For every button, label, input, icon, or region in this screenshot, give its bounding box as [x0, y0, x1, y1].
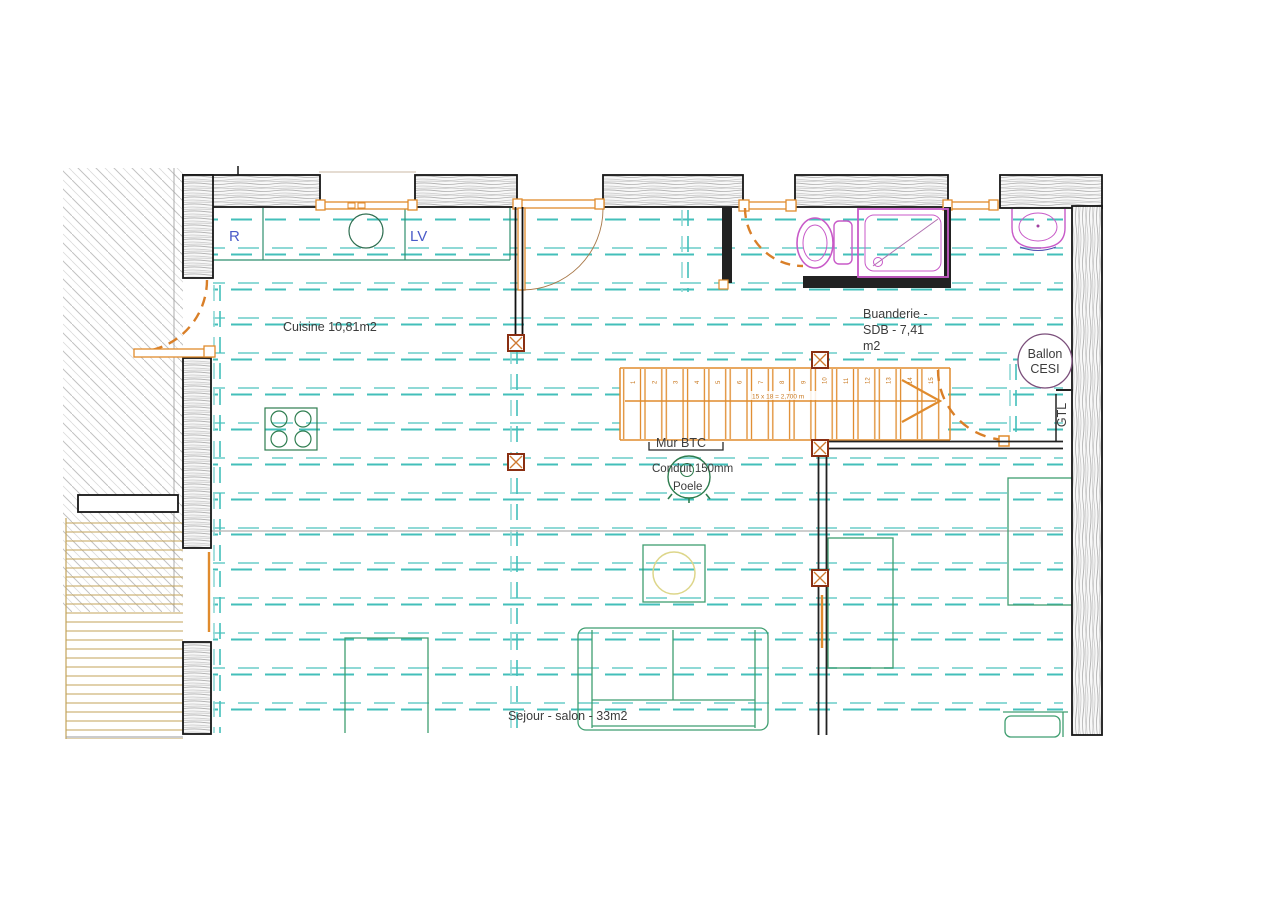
heating-band-top	[213, 216, 1063, 364]
wall-top-B	[415, 175, 517, 207]
wall-left-corner	[183, 175, 213, 278]
heating-band-main	[213, 450, 1063, 733]
wall-left-low	[183, 642, 211, 734]
wc-partition-end-block	[719, 280, 728, 289]
label-poele: Poele	[673, 481, 702, 493]
heating-band-left-of-stairs	[213, 364, 620, 450]
label-cuisine: Cuisine 10,81m2	[283, 320, 377, 334]
label-dishwasher: LV	[410, 228, 427, 245]
wall-top-E	[1000, 175, 1102, 208]
stair-tread-number: 15	[929, 377, 935, 384]
window1-jamb-right	[408, 200, 417, 210]
deck-boards	[66, 518, 183, 739]
terrace-entry-door-leaf	[134, 349, 214, 357]
terrace-low-wall	[78, 495, 178, 512]
terrace-entry-door-jamb	[204, 346, 215, 357]
floor-plan-canvas: 15 x 18 = 2,700 m 123456789101112131415	[0, 0, 1280, 905]
bathroom-door-jamb-right	[786, 200, 796, 211]
window1-jamb-left	[316, 200, 325, 210]
entry-door-jamb-right	[595, 199, 604, 209]
label-fridge: R	[229, 228, 240, 245]
wall-top-C	[603, 175, 743, 207]
stair-tread-number: 11	[844, 377, 850, 384]
window1-mid-tick	[348, 203, 355, 208]
label-ballon-2: CESI	[1030, 362, 1059, 376]
stair-tread-number: 13	[887, 377, 893, 384]
label-buanderie-3: m2	[863, 339, 880, 353]
label-conduit: Conduit 150mm	[652, 463, 733, 475]
staircase: 15 x 18 = 2,700 m 123456789101112131415	[620, 368, 1009, 446]
label-buanderie-2: SDB - 7,41	[863, 323, 924, 337]
window1-mid-tick	[358, 203, 365, 208]
window2-jamb-right	[989, 200, 998, 210]
stair-tread-number: 14	[908, 377, 914, 384]
stair-note: 15 x 18 = 2,700 m	[752, 394, 804, 401]
label-mur-btc: Mur BTC	[656, 436, 706, 450]
wall-top-D	[795, 175, 948, 207]
stair-treads	[622, 369, 942, 439]
label-ballon-1: Ballon	[1028, 347, 1063, 361]
wall-right	[1072, 206, 1102, 735]
label-gtl: GTL	[1055, 403, 1069, 427]
heating-loops	[213, 210, 1063, 733]
floor-plan-drawing: 15 x 18 = 2,700 m 123456789101112131415	[0, 0, 1280, 905]
label-sejour: Sejour - salon - 33m2	[508, 709, 628, 723]
water-heater-circle	[1018, 334, 1072, 388]
washbasin-tap	[1037, 225, 1040, 228]
label-buanderie-1: Buanderie -	[863, 307, 928, 321]
window1-sill	[319, 202, 416, 209]
stair-tread-number: 10	[823, 377, 829, 384]
wall-left-mid	[183, 358, 211, 548]
entry-door-frame	[516, 200, 604, 208]
wc-partition	[722, 207, 732, 283]
entry-door-leaf	[518, 208, 525, 290]
stair-tread-number: 12	[865, 377, 871, 384]
